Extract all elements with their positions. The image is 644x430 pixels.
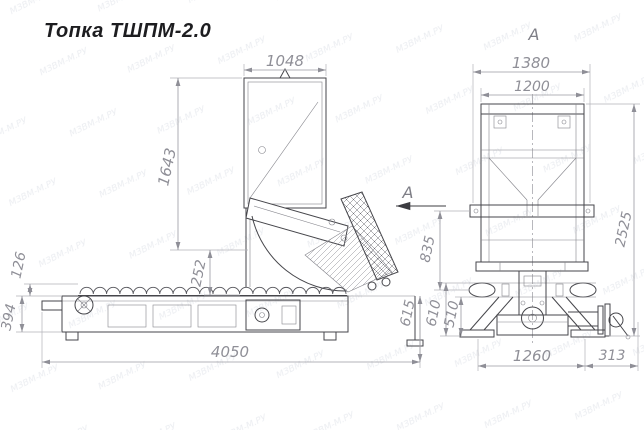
front-view-label: А: [528, 25, 540, 44]
dim-outer-width: 1380: [512, 54, 550, 72]
dim-total-length: 4050: [211, 343, 249, 361]
drawing-sheet: МЗВМ-М.РУ МЗВМ-М.РУ: [0, 0, 644, 430]
dim-shaft-length: 313: [599, 348, 626, 364]
dim-body-width: 1200: [514, 79, 550, 95]
dim-base-width: 1260: [513, 347, 551, 365]
section-arrow-label: А: [402, 183, 414, 202]
technical-drawing: МЗВМ-М.РУ МЗВМ-М.РУ: [0, 0, 644, 430]
dim-top-width: 1048: [266, 52, 304, 70]
drawing-title: Топка ТШПМ-2.0: [44, 20, 211, 43]
